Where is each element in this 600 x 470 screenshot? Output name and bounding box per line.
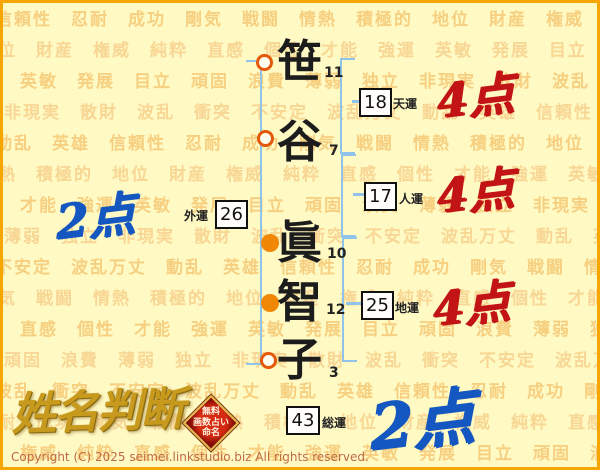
person-luck-value: 17 xyxy=(364,182,397,211)
heaven-luck-value: 18 xyxy=(359,88,392,117)
total-luck-label: 総運 xyxy=(322,414,346,431)
watermark-row: 信頼性 忍耐 成功 剛気 戦闘 情熱 積極的 地位 財産 権威 純粋 直感 個性… xyxy=(3,5,597,30)
stroke-count-2: 7 xyxy=(329,143,339,159)
outer-luck-label: 外運 xyxy=(184,207,208,224)
stamp-line-2: 画数占い xyxy=(193,418,229,429)
person-luck-bracket xyxy=(341,154,356,237)
person-luck-label: 人運 xyxy=(399,190,423,207)
marker-circle-icon xyxy=(256,54,273,71)
ground-luck-connector xyxy=(346,302,362,305)
name-char-5: 子 xyxy=(277,337,322,382)
heaven-luck-score: 4点 xyxy=(435,56,516,132)
stroke-count-4: 12 xyxy=(326,302,345,318)
total-luck-score: 2点 xyxy=(367,365,476,468)
stroke-count-1: 11 xyxy=(324,65,343,81)
ground-luck-value: 25 xyxy=(361,291,394,320)
marker-circle-icon xyxy=(260,352,277,369)
copyright-text: Copyright (C) 2025 seimei.linkstudio.biz… xyxy=(11,450,369,464)
fortune-result-page: 信頼性 忍耐 成功 剛気 戦闘 情熱 積極的 地位 財産 権威 純粋 直感 個性… xyxy=(0,0,600,470)
name-char-4: 智 xyxy=(277,279,322,324)
name-char-3: 眞 xyxy=(277,220,322,265)
outer-luck-score: 2点 xyxy=(53,174,136,253)
heaven-luck-label: 天運 xyxy=(393,95,417,112)
name-char-1: 笹 xyxy=(277,39,322,84)
person-luck-score: 4点 xyxy=(435,151,516,227)
outer-luck-value: 26 xyxy=(215,200,248,229)
marker-circle-icon xyxy=(257,130,274,147)
site-logo[interactable]: 姓名判断 xyxy=(10,386,183,437)
total-luck-value: 43 xyxy=(286,406,320,435)
stamp-line-1: 無料 xyxy=(202,407,220,418)
name-char-2: 谷 xyxy=(277,119,322,164)
ground-luck-label: 地運 xyxy=(395,299,419,316)
person-luck-connector xyxy=(353,193,364,196)
ground-luck-score: 4点 xyxy=(431,264,512,340)
stroke-count-5: 3 xyxy=(329,365,339,381)
stamp-line-3: 命名 xyxy=(202,428,220,439)
outer-luck-bracket xyxy=(246,60,262,365)
stroke-count-3: 10 xyxy=(327,246,346,262)
free-naming-stamp-icon: 無料 画数占い 命名 xyxy=(184,396,238,450)
